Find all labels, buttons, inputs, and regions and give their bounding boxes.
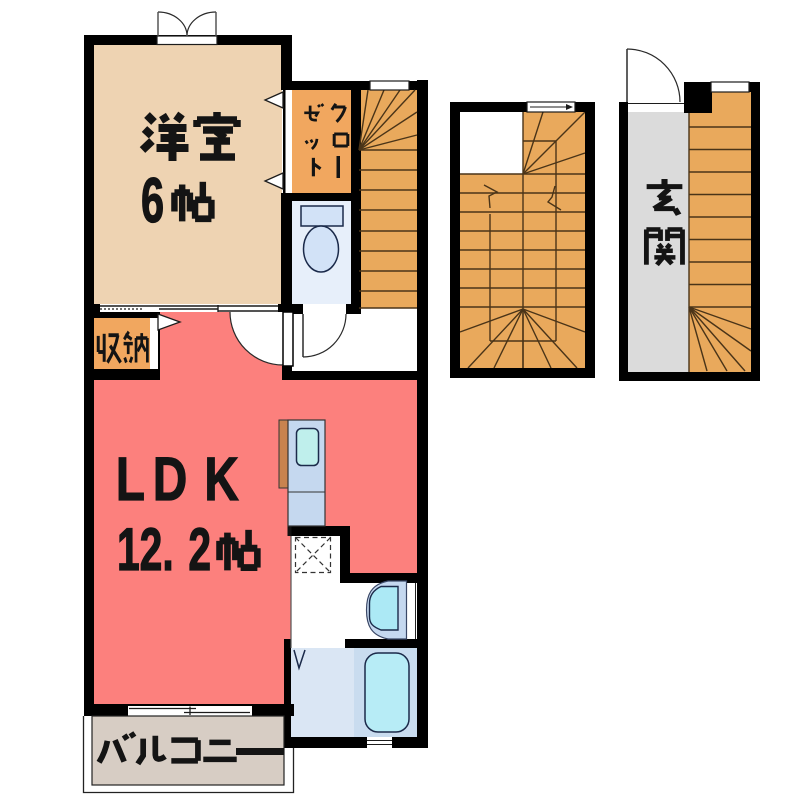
svg-text:L: L (116, 444, 145, 513)
svg-text:6: 6 (141, 167, 164, 237)
svg-text:D: D (153, 444, 187, 513)
svg-text:K: K (204, 444, 238, 513)
svg-text:2: 2 (188, 516, 211, 583)
svg-text:12.: 12. (117, 516, 174, 583)
